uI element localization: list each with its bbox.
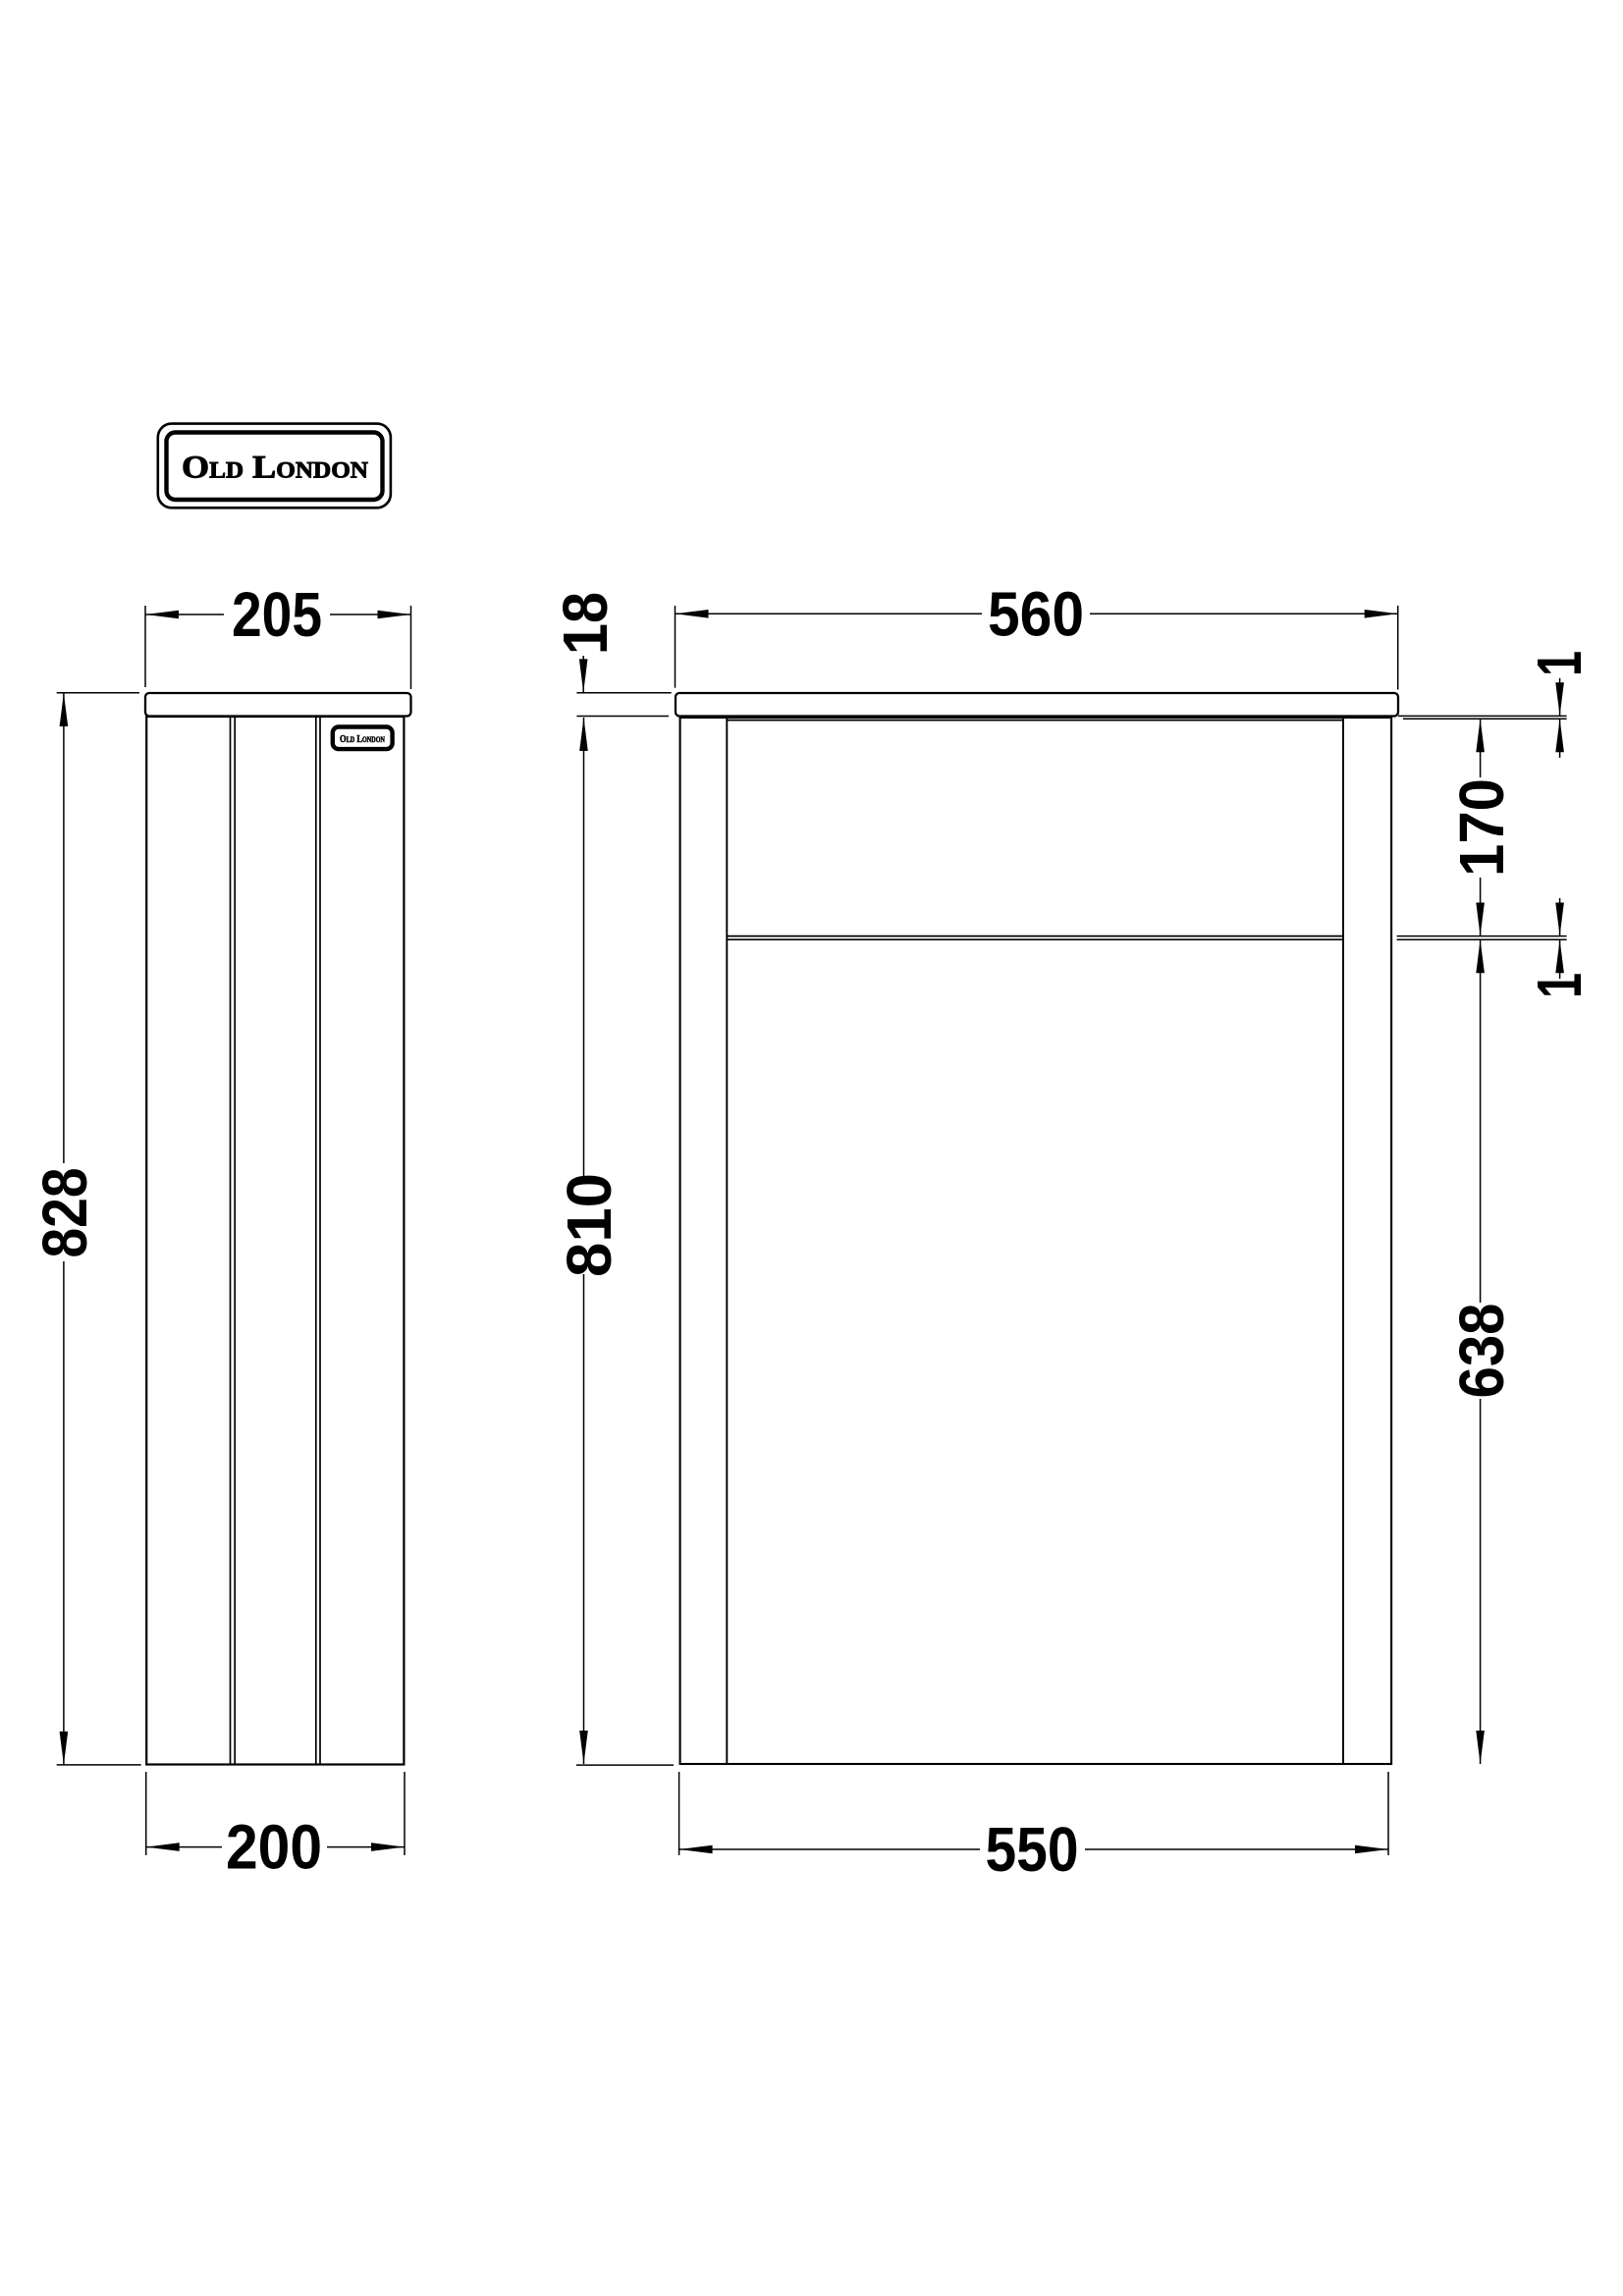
svg-text:828: 828 [29, 1168, 100, 1258]
svg-text:205: 205 [232, 579, 322, 650]
svg-text:Old London: Old London [340, 733, 385, 745]
svg-text:18: 18 [550, 592, 621, 655]
svg-text:170: 170 [1446, 778, 1517, 877]
svg-text:550: 550 [986, 1814, 1079, 1885]
svg-text:1: 1 [1524, 973, 1595, 998]
svg-text:560: 560 [988, 578, 1084, 649]
svg-text:638: 638 [1446, 1304, 1517, 1399]
svg-text:Old London: Old London [182, 451, 368, 486]
svg-text:810: 810 [554, 1173, 624, 1277]
svg-text:1: 1 [1524, 651, 1595, 676]
svg-text:200: 200 [226, 1812, 322, 1883]
